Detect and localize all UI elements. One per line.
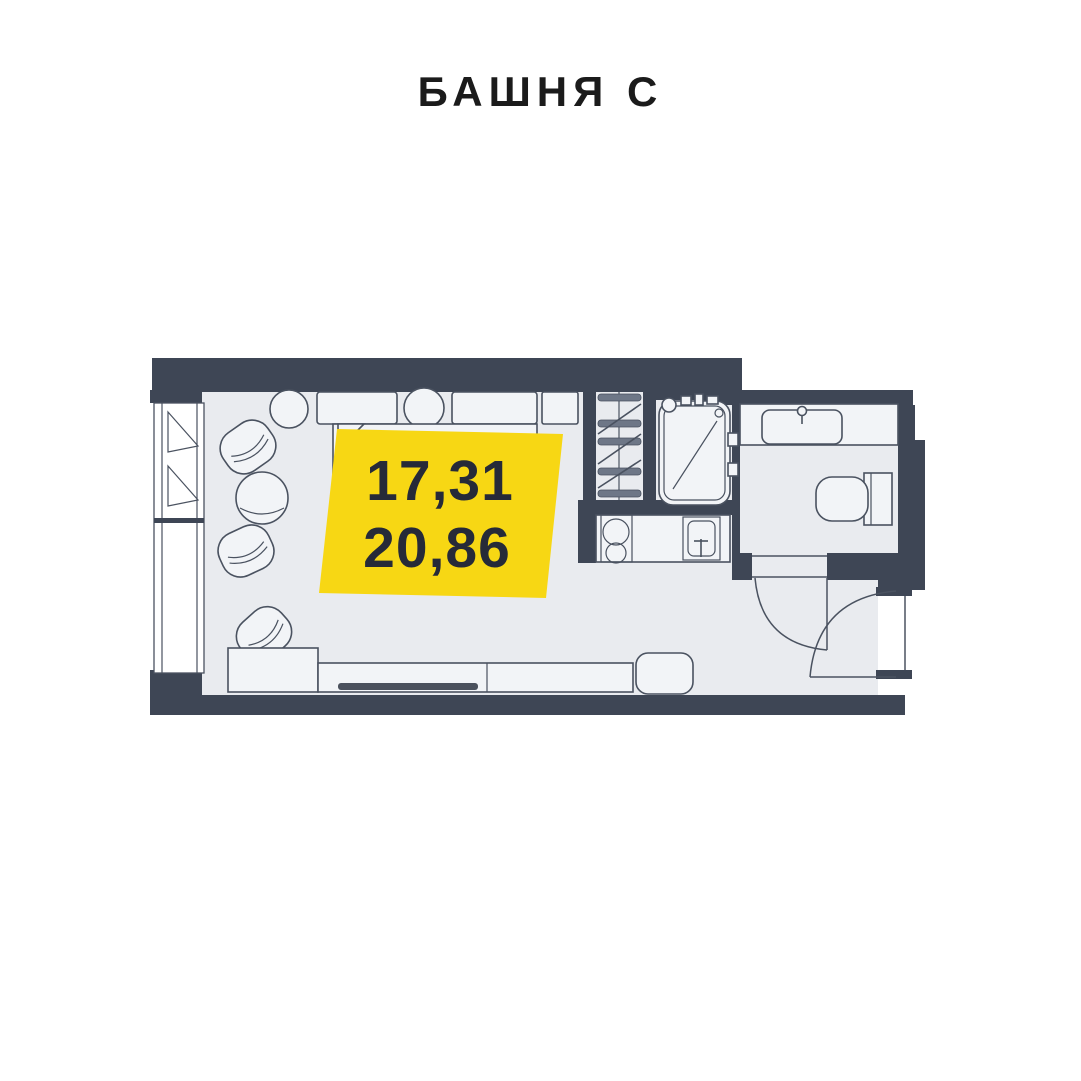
wall-window-stub-top — [150, 390, 202, 403]
pillow — [317, 392, 397, 424]
wall-kitchen-jamb — [578, 500, 596, 563]
kitchen — [596, 515, 730, 563]
bedside-shelf — [542, 392, 578, 424]
pillow — [452, 392, 537, 424]
toilet-bowl — [816, 477, 868, 521]
ottoman — [636, 653, 693, 694]
bathtub-fitting — [695, 394, 703, 405]
desk — [228, 648, 318, 692]
floor-plan: 17,31 20,86 — [0, 0, 1081, 1081]
wall-closet-right — [643, 392, 656, 515]
armchair-round — [236, 472, 288, 524]
bathtub-fitting — [707, 396, 718, 404]
closet-shelf — [598, 420, 641, 427]
closet-shelf — [598, 490, 641, 497]
bathroom-faucet-knob — [798, 407, 807, 416]
wall-closet-left — [583, 392, 596, 515]
window-band — [154, 403, 204, 673]
wall-right — [898, 405, 925, 590]
area-total-value: 20,86 — [363, 516, 511, 580]
bathtub-faucet — [662, 398, 676, 412]
wall-entry-corner — [878, 553, 898, 590]
wall-window-stub-bottom — [150, 670, 202, 700]
wall-bathroom-top — [723, 390, 913, 405]
stool — [270, 390, 308, 428]
wall-tick — [728, 463, 738, 476]
area-living-value: 17,31 — [366, 449, 514, 513]
wall-top — [152, 358, 722, 392]
tv — [338, 683, 478, 690]
stool — [404, 388, 444, 428]
closet-shelf — [598, 394, 641, 401]
wall-bathroom-bottom-1 — [732, 553, 752, 580]
area-badge[interactable]: 17,31 20,86 — [319, 429, 563, 598]
bathtub-room — [659, 394, 738, 505]
wall-bottom — [150, 695, 905, 715]
window-mullion — [154, 518, 204, 523]
wall-bathroom-left — [732, 398, 740, 560]
bathtub-fitting — [681, 396, 691, 405]
kitchen-counter — [596, 515, 730, 562]
wall-tick — [728, 433, 738, 446]
